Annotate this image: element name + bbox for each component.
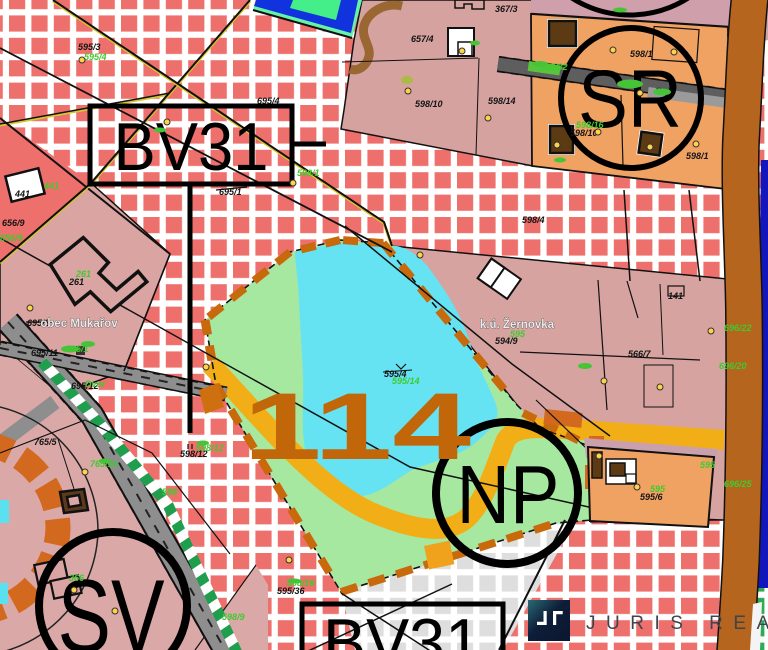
svg-text:656/9: 656/9: [0, 233, 23, 243]
svg-text:566/7: 566/7: [628, 349, 652, 359]
svg-text:261: 261: [75, 269, 91, 279]
svg-text:366: 366: [69, 573, 85, 583]
svg-text:598/1: 598/1: [297, 168, 320, 178]
svg-text:598/1: 598/1: [630, 49, 653, 59]
svg-text:598/16: 598/16: [576, 120, 605, 130]
svg-text:598/9: 598/9: [222, 612, 245, 622]
svg-text:595/14: 595/14: [392, 376, 420, 386]
svg-text:NP: NP: [457, 448, 560, 541]
svg-text:695/11: 695/11: [31, 348, 58, 358]
svg-text:598/4: 598/4: [522, 215, 545, 225]
svg-text:Dvor: Dvor: [85, 379, 106, 389]
svg-text:598/14: 598/14: [488, 96, 516, 106]
svg-text:114: 114: [243, 374, 471, 480]
svg-text:598/10: 598/10: [415, 99, 443, 109]
svg-text:k.ú. Žernovka: k.ú. Žernovka: [480, 318, 555, 331]
svg-text:598/1: 598/1: [686, 151, 709, 161]
svg-text:595: 595: [650, 484, 666, 494]
svg-text:BV31: BV31: [114, 109, 269, 185]
svg-text:BV31: BV31: [323, 605, 481, 650]
svg-text:657/4: 657/4: [411, 34, 434, 44]
svg-text:441: 441: [43, 181, 59, 191]
svg-text:obec Mukařov: obec Mukařov: [40, 318, 118, 330]
svg-text:595: 595: [700, 460, 716, 470]
svg-text:695/4: 695/4: [257, 96, 280, 106]
svg-text:441: 441: [14, 189, 30, 199]
svg-text:595/4: 595/4: [84, 52, 107, 62]
svg-text:598: 598: [162, 487, 177, 497]
svg-text:696/20: 696/20: [719, 361, 747, 371]
svg-text:595/3: 595/3: [78, 42, 101, 52]
svg-text:765/5: 765/5: [34, 437, 58, 447]
svg-text:696/22: 696/22: [724, 323, 752, 333]
svg-text:JURIS REAL: JURIS REAL: [586, 613, 768, 634]
svg-text:141: 141: [668, 291, 683, 301]
svg-text:696/25: 696/25: [724, 479, 753, 489]
svg-text:367/3: 367/3: [495, 4, 518, 14]
svg-text:656/9: 656/9: [2, 218, 25, 228]
